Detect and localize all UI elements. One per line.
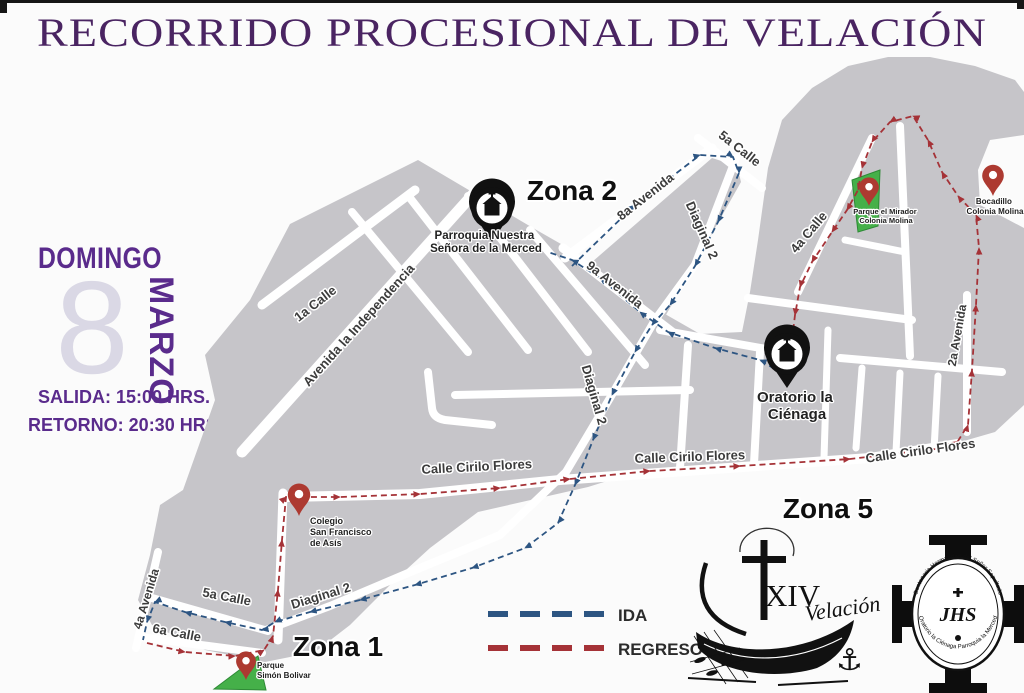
sail-swoosh [702, 563, 746, 634]
merced-line2: Señora de la Merced [430, 243, 542, 255]
landmark-label-mirador: Parque el Mirador Colonia Molina [853, 207, 918, 225]
bolivar-line1: Parque [257, 661, 285, 670]
mirador-line1: Parque el Mirador [853, 207, 916, 216]
colegio-line1: Colegio [310, 516, 344, 526]
landmark-label-oratorio: Oratorio la Ciénaga [757, 389, 837, 423]
seal-monogram: JHS [939, 604, 977, 626]
merced-line1: Parroquia Nuestra [435, 230, 535, 242]
colegio-line2: San Francisco [310, 527, 372, 537]
zone-label-zona-2: Zona 2 [527, 175, 617, 206]
zone-label-zona-1: Zona 1 [293, 631, 383, 662]
landmark-label-bolivar: Parque Simón Bolivar [257, 661, 311, 680]
boat-hull [696, 620, 854, 674]
colegio-line3: de Asís [310, 538, 342, 548]
legend-regreso-label: REGRESO [618, 640, 703, 659]
velacion-boat-logo: XIV Velación ⚓ [688, 528, 882, 685]
poster-recorrido-procesional: RECORRIDO PROCESIONAL DE VELACIÓN 8 DOMI… [0, 0, 1024, 693]
salida-time: SALIDA: 15:00 HRS. [38, 387, 210, 407]
bolivar-line2: Simón Bolivar [257, 671, 311, 680]
retorno-time: RETORNO: 20:30 HRS. [28, 415, 223, 435]
corner-mark-left [0, 0, 7, 13]
hermandad-seal: Centenaria Hermandad del Señor Sepultado… [892, 535, 1024, 693]
date-number: 8 [55, 254, 128, 401]
legend-ida-label: IDA [618, 606, 647, 625]
oratorio-line2: Ciénaga [768, 406, 827, 423]
landmark-label-merced: Parroquia Nuestra Señora de la Merced [430, 230, 542, 255]
route-legend: IDA REGRESO [488, 606, 703, 659]
water-lines [688, 678, 848, 685]
bocadillo-line2: Colonia Molina [967, 207, 1024, 216]
mirador-line2: Colonia Molina [859, 216, 913, 225]
day-label: DOMINGO [38, 242, 162, 275]
bocadillo-line1: Bocadillo [976, 197, 1012, 206]
anchor-icon: ⚓ [836, 643, 863, 678]
page-title: RECORRIDO PROCESIONAL DE VELACIÓN [37, 10, 987, 55]
seal-cross-small-bar [953, 591, 963, 594]
seal-pendant [955, 635, 961, 641]
location-pin-bocadillo-icon [982, 165, 1004, 196]
zone-label-zona-5: Zona 5 [783, 493, 873, 524]
landmark-label-bocadillo: Bocadillo Colonia Molina [967, 197, 1024, 216]
top-border [0, 0, 1024, 3]
corner-mark-right [1017, 0, 1024, 9]
oratorio-line1: Oratorio la [757, 389, 834, 406]
schedule-panel: 8 DOMINGO MARZO SALIDA: 15:00 HRS. RETOR… [28, 242, 223, 435]
